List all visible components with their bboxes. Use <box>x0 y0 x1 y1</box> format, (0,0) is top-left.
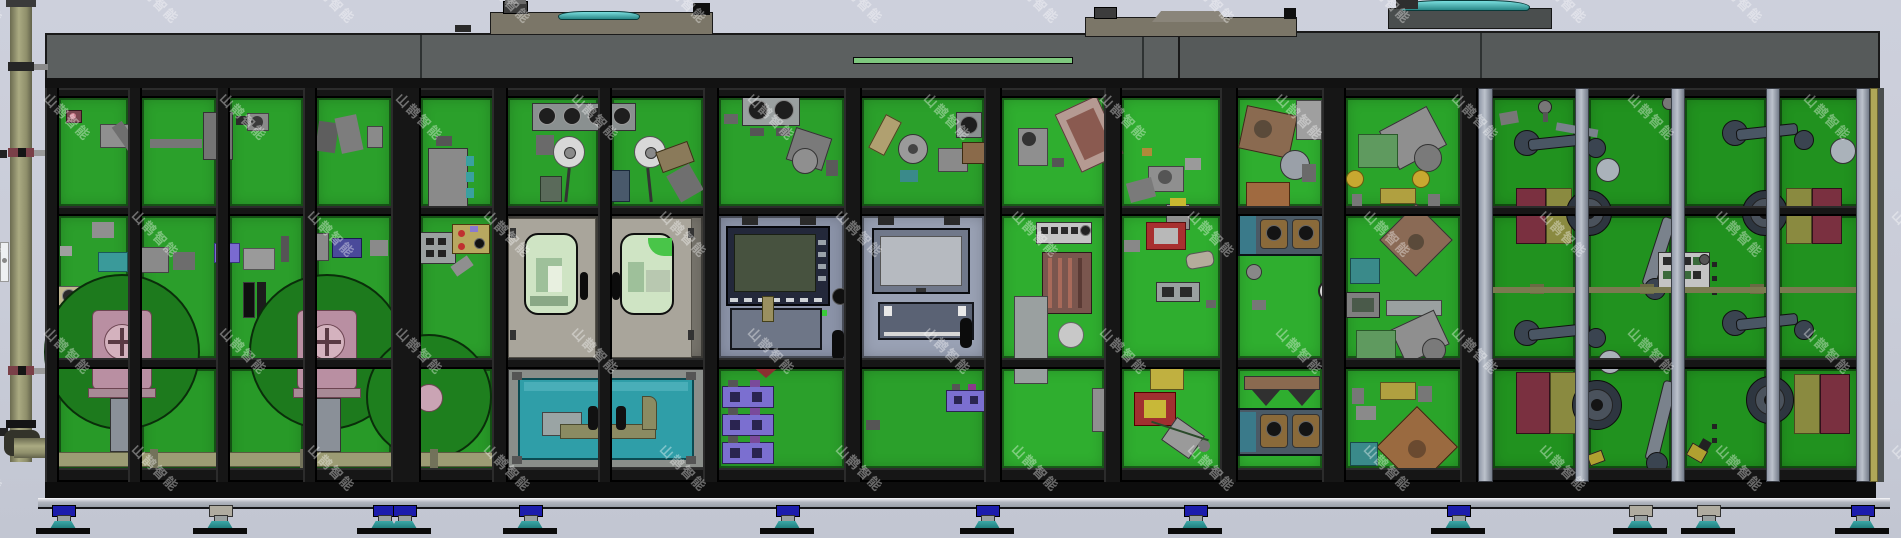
leveling-foot-gray <box>1613 505 1667 535</box>
leveling-foot-blue <box>1835 505 1889 535</box>
foot-pad <box>960 528 1014 534</box>
leveling-foot-blue <box>760 505 814 535</box>
leveling-foot-blue <box>1168 505 1222 535</box>
leveling-foot-blue <box>960 505 1014 535</box>
foot-pad <box>1681 528 1735 534</box>
leveling-foot-blue <box>377 505 431 535</box>
foot-pad <box>760 528 814 534</box>
foot-pad <box>1168 528 1222 534</box>
foot-pad <box>503 528 557 534</box>
foot-pad <box>193 528 247 534</box>
foot-pad <box>1613 528 1667 534</box>
leveling-foot-blue <box>1431 505 1485 535</box>
base-black-band <box>45 482 1876 499</box>
foot-pad <box>377 528 431 534</box>
foot-pad <box>1835 528 1889 534</box>
foot-pad <box>1431 528 1485 534</box>
cad-viewport[interactable]: 山鹊智能山鹊智能山鹊智能山鹊智能山鹊智能山鹊智能山鹊智能山鹊智能山鹊智能山鹊智能… <box>0 0 1901 538</box>
base-and-feet-layer <box>0 0 1901 538</box>
leveling-foot-gray <box>1681 505 1735 535</box>
leveling-foot-blue <box>36 505 90 535</box>
foot-pad <box>36 528 90 534</box>
leveling-foot-blue <box>503 505 557 535</box>
leveling-foot-gray <box>193 505 247 535</box>
